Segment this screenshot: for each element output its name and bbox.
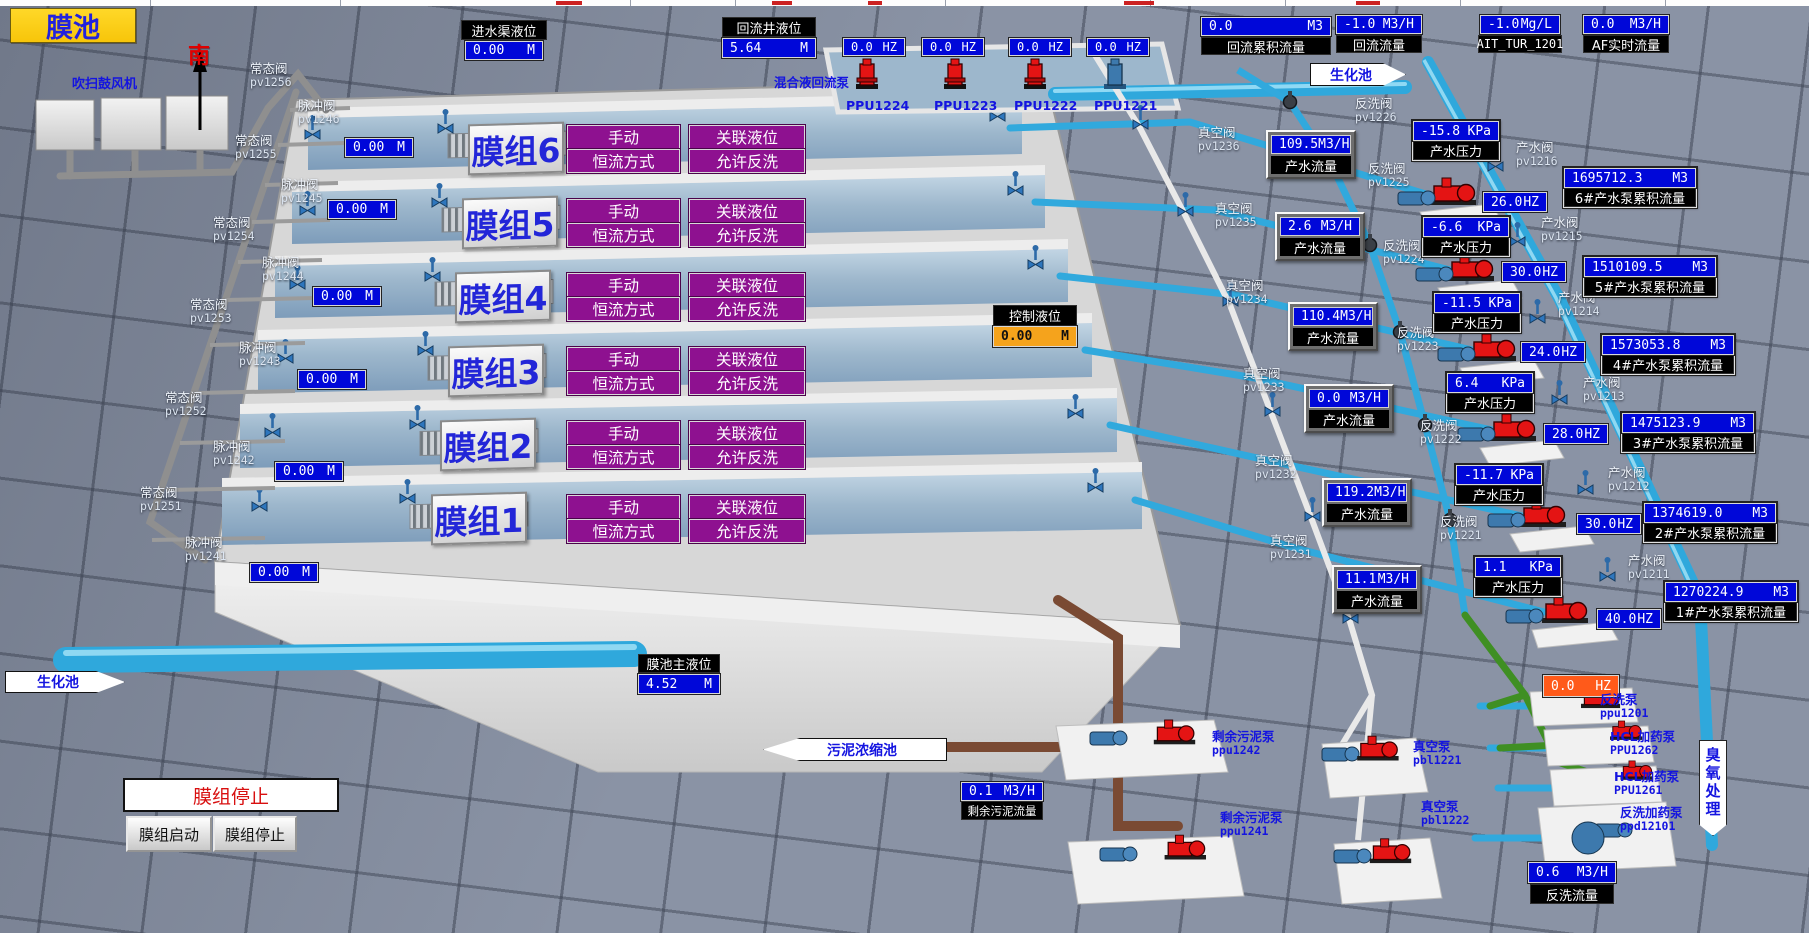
group2-assoc-button[interactable]: 关联液位 [689, 421, 805, 445]
main-level-label: 膜池主液位 [638, 654, 720, 673]
group1-mode-button[interactable]: 手动 [567, 495, 680, 519]
train3-total: 1475123.9M3 3#产水泵累积流量 [1621, 412, 1755, 453]
group6-backwash-button[interactable]: 允许反洗 [689, 149, 805, 173]
backwash-flow-value: 0.6M3/H [1528, 862, 1616, 883]
turbidity-label: AIT_TUR_1201 [1478, 35, 1562, 53]
valve-pv1212[interactable]: 产水阀pv1212 [1608, 466, 1650, 493]
sludge-flow-value: 0.1M3/H [961, 782, 1043, 801]
valve-pv1241[interactable]: 脉冲阀pv1241 [185, 536, 227, 563]
group5-backwash-button[interactable]: 允许反洗 [689, 223, 805, 247]
valve-pv1226[interactable]: 反洗阀pv1226 [1355, 97, 1397, 124]
valve-pv1215[interactable]: 产水阀pv1215 [1541, 216, 1583, 243]
group4-assoc-button[interactable]: 关联液位 [689, 273, 805, 297]
blowers-label: 吹扫鼓风机 [72, 78, 137, 93]
inlet-level-label: 进水渠液位 [461, 20, 547, 40]
group1-level: 0.00M [250, 563, 318, 582]
ppu1223-hz: 0.0HZ [922, 38, 984, 56]
group3-backwash-button[interactable]: 允许反洗 [689, 371, 805, 395]
train2-pressure: -11.7KPa 产水压力 [1455, 464, 1543, 505]
train5-pressure: -6.6KPa 产水压力 [1422, 216, 1510, 257]
membrane-group-plate-4: 膜组4 [455, 270, 551, 324]
vacuum-pump-pbl1221[interactable]: 真空泵pbl1221 [1413, 740, 1461, 768]
group6-flowmode-button[interactable]: 恒流方式 [567, 149, 680, 173]
train1-total: 1270224.9M3 1#产水泵累积流量 [1664, 581, 1798, 622]
group5-level: 0.00M [328, 200, 396, 219]
ppu1224-hz: 0.0HZ [843, 38, 905, 56]
group-stop-button[interactable]: 膜组停止 [213, 816, 297, 852]
af-flow-value: 0.0M3/H [1583, 15, 1669, 34]
valve-pv1225[interactable]: 反洗阀pv1225 [1368, 162, 1410, 189]
ppu1221-hz: 0.0HZ [1087, 38, 1149, 56]
group4-mode-button[interactable]: 手动 [567, 273, 680, 297]
inlet-level-value: 0.00M [465, 41, 543, 60]
group5-mode-button[interactable]: 手动 [567, 199, 680, 223]
membrane-group-plate-6: 膜组6 [468, 122, 564, 176]
train5-total: 1510109.5M3 5#产水泵累积流量 [1583, 256, 1717, 297]
train2-total: 1374619.0M3 2#产水泵累积流量 [1643, 502, 1777, 543]
compass-south-label: 南 [188, 38, 210, 70]
group-status-box: 膜组停止 [123, 778, 339, 812]
backwash-pump-ppu1201[interactable]: 反洗泵ppu1201 [1600, 693, 1648, 721]
valve-pv1253[interactable]: 常态阀pv1253 [190, 298, 232, 325]
train4-flow: 110.4M3/H 产水流量 [1288, 302, 1378, 351]
group5-assoc-button[interactable]: 关联液位 [689, 199, 805, 223]
valve-pv1251[interactable]: 常态阀pv1251 [140, 486, 182, 513]
train1-pressure: 1.1KPa 产水压力 [1474, 556, 1562, 597]
train6-pressure: -15.8KPa 产水压力 [1412, 120, 1500, 161]
valve-pv1243[interactable]: 脉冲阀pv1243 [239, 341, 281, 368]
group5-flowmode-button[interactable]: 恒流方式 [567, 223, 680, 247]
valve-pv1224[interactable]: 反洗阀pv1224 [1383, 239, 1425, 266]
valve-pv1252[interactable]: 常态阀pv1252 [165, 391, 207, 418]
group2-flowmode-button[interactable]: 恒流方式 [567, 445, 680, 469]
return-total-value: 0.0M3 [1201, 17, 1331, 36]
group2-level: 0.00M [275, 462, 343, 481]
group3-assoc-button[interactable]: 关联液位 [689, 347, 805, 371]
train4-hz: 24.0HZ [1521, 342, 1585, 362]
train3-flow: 0.0M3/H 产水流量 [1304, 384, 1394, 433]
sludge-pump-ppu1241[interactable]: 剩余污泥泵ppu1241 [1220, 811, 1283, 839]
group1-backwash-button[interactable]: 允许反洗 [689, 519, 805, 543]
valve-pv1233[interactable]: 真空阀pv1233 [1243, 367, 1285, 394]
sludge-flow-label: 剩余污泥流量 [961, 801, 1043, 820]
return-flow-value: -1.0M3/H [1336, 15, 1422, 34]
group2-backwash-button[interactable]: 允许反洗 [689, 445, 805, 469]
valve-pv1213[interactable]: 产水阀pv1213 [1583, 376, 1625, 403]
train1-hz: 40.0HZ [1597, 609, 1661, 629]
train4-total: 1573053.8M3 4#产水泵累积流量 [1601, 334, 1735, 375]
ozone-link[interactable]: 臭氧处理 [1699, 740, 1727, 836]
hmi-screen: 膜池 南 吹扫鼓风机 进水渠液位 0.00M 回流井液位 5.64M 混合液回流… [0, 0, 1809, 933]
return-flow-label: 回流流量 [1336, 35, 1422, 53]
train4-pressure: -11.5KPa 产水压力 [1433, 292, 1521, 333]
group4-backwash-button[interactable]: 允许反洗 [689, 297, 805, 321]
group2-mode-button[interactable]: 手动 [567, 421, 680, 445]
group4-flowmode-button[interactable]: 恒流方式 [567, 297, 680, 321]
top-edge-artifact [0, 0, 1809, 6]
valve-pv1231[interactable]: 真空阀pv1231 [1270, 534, 1312, 561]
train6-flow: 109.5M3/H 产水流量 [1266, 130, 1356, 179]
membrane-group-plate-5: 膜组5 [462, 196, 558, 250]
ppu1222-tag[interactable]: PPU1222 [1014, 99, 1077, 113]
group6-mode-button[interactable]: 手动 [567, 125, 680, 149]
train3-hz: 28.0HZ [1544, 424, 1608, 444]
ppu1222-hz: 0.0HZ [1009, 38, 1071, 56]
valve-pv1216[interactable]: 产水阀pv1216 [1516, 141, 1558, 168]
group-start-button[interactable]: 膜组启动 [126, 816, 212, 852]
valve-pv1246[interactable]: 脉冲阀pv1246 [298, 99, 340, 126]
membrane-group-plate-2: 膜组2 [440, 418, 536, 472]
valve-pv1256[interactable]: 常态阀pv1256 [250, 62, 292, 89]
membrane-group-plate-3: 膜组3 [448, 344, 544, 398]
valve-pv1235[interactable]: 真空阀pv1235 [1215, 202, 1257, 229]
valve-pv1236[interactable]: 真空阀pv1236 [1198, 126, 1240, 153]
dosing-pump-ppu1262[interactable]: HCL加药泵PPU1262 [1610, 730, 1675, 758]
membrane-group-plate-1: 膜组1 [431, 492, 527, 546]
control-level-label: 控制液位 [993, 305, 1077, 326]
af-flow-label: AF实时流量 [1583, 35, 1669, 53]
main-level-value: 4.52M [638, 674, 720, 694]
page-title: 膜池 [10, 8, 136, 43]
valve-pv1211[interactable]: 产水阀pv1211 [1628, 554, 1670, 581]
group1-flowmode-button[interactable]: 恒流方式 [567, 519, 680, 543]
valve-pv1255[interactable]: 常态阀pv1255 [235, 134, 277, 161]
valve-pv1232[interactable]: 真空阀pv1232 [1255, 454, 1297, 481]
train1-flow: 11.1M3/H 产水流量 [1332, 565, 1422, 614]
valve-pv1234[interactable]: 真空阀pv1234 [1226, 279, 1268, 306]
valve-pv1254[interactable]: 常态阀pv1254 [213, 216, 255, 243]
mix-return-pumps-label: 混合液回流泵 [774, 76, 849, 90]
backwash-flow-label: 反洗流量 [1530, 884, 1614, 904]
dosing-pump-ppd12101[interactable]: 反洗加药泵ppd12101 [1620, 806, 1683, 834]
group6-assoc-button[interactable]: 关联液位 [689, 125, 805, 149]
dosing-pump-ppu1261[interactable]: HCL加药泵PPU1261 [1614, 770, 1679, 798]
ppu1223-tag[interactable]: PPU1223 [934, 99, 997, 113]
valve-pv1222[interactable]: 反洗阀pv1222 [1420, 419, 1462, 446]
valve-pv1244[interactable]: 脉冲阀pv1244 [262, 256, 304, 283]
sludge-tank-link[interactable]: 污泥浓缩池 [763, 738, 947, 761]
vacuum-pump-pbl1222[interactable]: 真空泵pbl1222 [1421, 800, 1469, 828]
train6-total: 1695712.3M3 6#产水泵累积流量 [1563, 167, 1697, 208]
train5-hz: 30.0HZ [1502, 262, 1566, 282]
train2-flow: 119.2M3/H 产水流量 [1322, 478, 1412, 527]
sludge-pump-ppu1242[interactable]: 剩余污泥泵ppu1242 [1212, 730, 1275, 758]
train2-hz: 30.0HZ [1577, 514, 1641, 534]
train6-hz: 26.0HZ [1483, 192, 1547, 212]
ppu1221-tag[interactable]: PPU1221 [1094, 99, 1157, 113]
return-well-value: 5.64M [722, 38, 816, 58]
valve-pv1242[interactable]: 脉冲阀pv1242 [213, 440, 255, 467]
train5-flow: 2.6M3/H 产水流量 [1275, 212, 1365, 261]
return-total-label: 回流累积流量 [1201, 37, 1331, 55]
turbidity-value: -1.0Mg/L [1480, 15, 1560, 34]
ppu1224-tag[interactable]: PPU1224 [846, 99, 909, 113]
group3-mode-button[interactable]: 手动 [567, 347, 680, 371]
return-well-label: 回流井液位 [722, 17, 816, 37]
group4-level: 0.00M [313, 287, 381, 306]
group6-level: 0.00M [345, 138, 413, 157]
valve-pv1221[interactable]: 反洗阀pv1221 [1440, 515, 1482, 542]
control-level-value[interactable]: 0.00M [993, 326, 1077, 347]
group3-level: 0.00M [298, 370, 366, 389]
valve-pv1245[interactable]: 脉冲阀pv1245 [281, 178, 323, 205]
group3-flowmode-button[interactable]: 恒流方式 [567, 371, 680, 395]
group1-assoc-button[interactable]: 关联液位 [689, 495, 805, 519]
train3-pressure: 6.4KPa 产水压力 [1446, 372, 1534, 413]
